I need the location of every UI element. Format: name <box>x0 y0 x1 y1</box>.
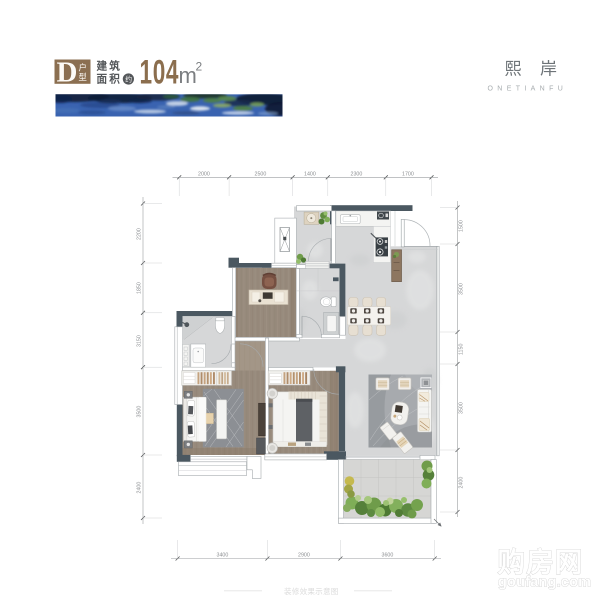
svg-text:2: 2 <box>196 60 203 74</box>
svg-text:m: m <box>179 63 197 88</box>
svg-text:2400: 2400 <box>137 482 143 494</box>
svg-text:户: 户 <box>79 63 87 73</box>
svg-text:2300: 2300 <box>351 172 363 178</box>
svg-text:型: 型 <box>79 72 87 82</box>
svg-text:D: D <box>57 57 78 89</box>
svg-text:3400: 3400 <box>217 553 229 559</box>
svg-text:3500: 3500 <box>459 402 465 414</box>
svg-text:1500: 1500 <box>459 220 465 232</box>
svg-text:2200: 2200 <box>137 228 143 240</box>
svg-text:2500: 2500 <box>255 172 267 178</box>
svg-text:2000: 2000 <box>198 172 210 178</box>
svg-text:面积: 面积 <box>97 73 123 86</box>
svg-text:3500: 3500 <box>137 406 143 418</box>
svg-text:goufang.com: goufang.com <box>498 575 591 591</box>
svg-text:1150: 1150 <box>459 344 465 355</box>
svg-text:建筑: 建筑 <box>96 59 123 72</box>
svg-text:1400: 1400 <box>304 172 316 178</box>
svg-text:3600: 3600 <box>382 553 394 559</box>
svg-text:ONETIANFU: ONETIANFU <box>488 86 568 93</box>
svg-text:熙岸: 熙岸 <box>505 60 576 79</box>
svg-text:2400: 2400 <box>459 477 465 489</box>
svg-text:购房网: 购房网 <box>498 547 584 578</box>
svg-text:2900: 2900 <box>298 553 310 559</box>
svg-text:1700: 1700 <box>402 172 414 178</box>
svg-text:3500: 3500 <box>459 283 465 295</box>
svg-text:装修效果示意图: 装修效果示意图 <box>284 586 339 596</box>
svg-text:3150: 3150 <box>137 335 143 347</box>
svg-text:1850: 1850 <box>137 282 143 294</box>
svg-text:约: 约 <box>125 75 132 84</box>
svg-text:104: 104 <box>140 54 180 92</box>
